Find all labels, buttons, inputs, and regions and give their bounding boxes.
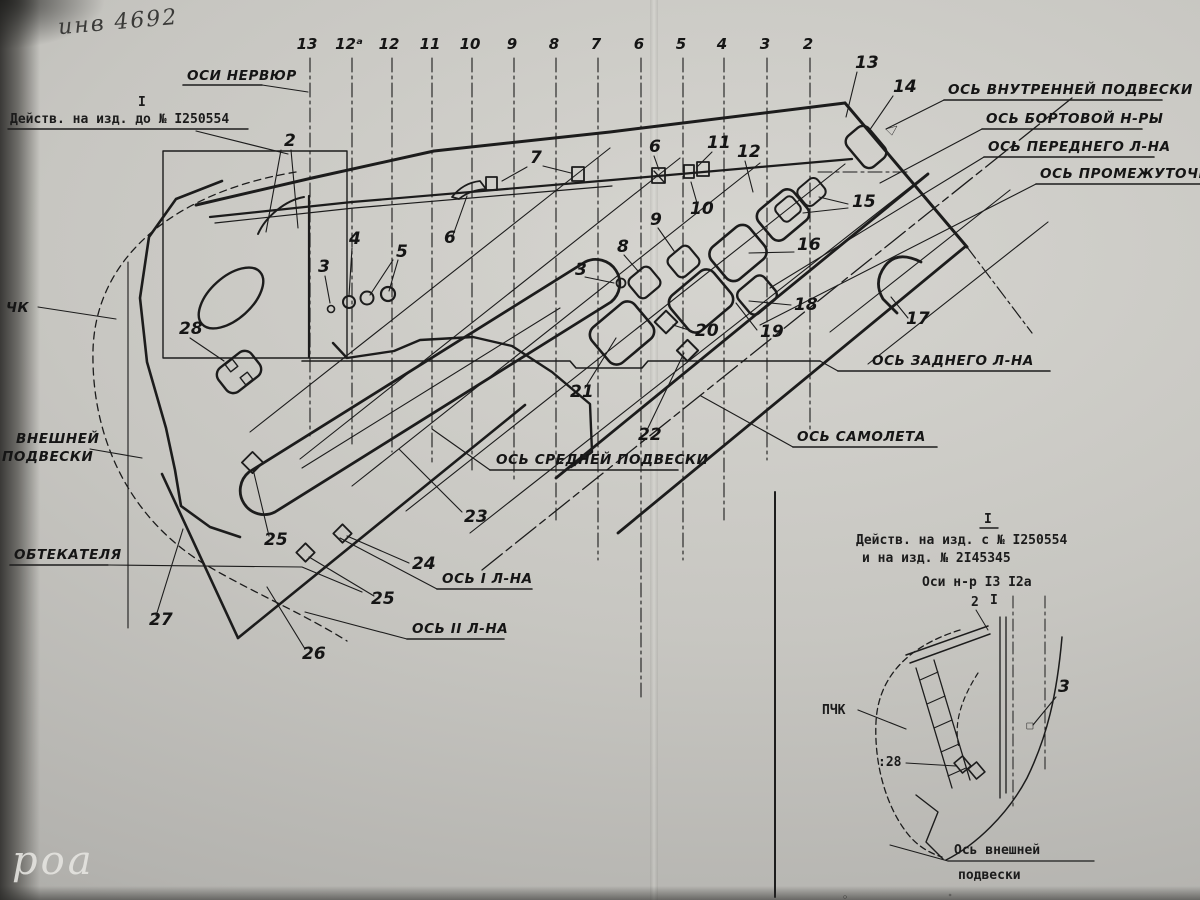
inset-ladder-rung: [920, 672, 938, 680]
rib-number: 7: [591, 35, 602, 53]
leader: [749, 252, 794, 253]
leader: [647, 353, 684, 430]
callout-14: 14: [893, 77, 917, 97]
inset-slat-line: [906, 626, 988, 655]
rib-number: 13: [297, 35, 318, 53]
inset-diagram: IДейств. на изд. с № I250554и на изд. № …: [775, 492, 1094, 897]
callout-18: 18: [794, 295, 818, 315]
callout-9: 9: [650, 210, 662, 230]
inset-callout-1: I: [990, 593, 998, 608]
inset-ladder-rung: [927, 696, 945, 704]
pchk-label: ЧК: [6, 300, 30, 316]
callout-28: 28: [179, 319, 203, 339]
leader: [819, 197, 848, 204]
rib-number: 4: [716, 35, 727, 53]
callout-21: 21: [570, 382, 594, 402]
callout-16: 16: [797, 235, 821, 255]
diamond-fitting-22: [677, 340, 698, 361]
callout-25b: 25: [371, 589, 395, 609]
leader: [906, 763, 956, 766]
side-rib-axis-label: ОСЬ БОРТОВОЙ Н-РЫ: [986, 110, 1163, 127]
callout-10: 10: [690, 199, 714, 219]
rear-spar-axis-label: ОСЬ ЗАДНЕГО Л-НА: [872, 353, 1034, 369]
callout-5: 5: [396, 242, 408, 262]
validity-note-old: Действ. на изд. до № I250554: [10, 112, 229, 127]
rib-number: 9: [507, 35, 517, 53]
leader: [880, 129, 982, 183]
leader: [701, 396, 793, 447]
inset-callout-3: 3: [1058, 677, 1070, 697]
inset-ladder-rung: [941, 744, 959, 752]
callout-2: 2: [284, 131, 296, 151]
callout-13: 13: [855, 53, 879, 73]
leader: [858, 710, 906, 729]
leader: [347, 536, 409, 563]
leader: [890, 845, 948, 861]
rib-number: 11: [420, 35, 441, 53]
leader: [452, 196, 467, 238]
inset-point-3: [1027, 723, 1033, 729]
hole-4: [343, 296, 355, 308]
callout-7: 7: [530, 148, 542, 168]
fairing-label: ОБТЕКАТЕЛЯ: [14, 547, 122, 563]
leader: [585, 277, 614, 283]
inset-callout-2: 2: [971, 595, 979, 610]
leader: [658, 228, 674, 251]
photo-watermark: роа: [12, 838, 95, 884]
callout-26: 26: [302, 644, 326, 664]
callout-19: 19: [760, 322, 784, 342]
inset-rib-axes-label: Оси н-р I3 I2а: [922, 575, 1032, 590]
callout-4: 4: [348, 229, 361, 249]
inset-fairing-outline: [876, 630, 960, 857]
leader: [266, 150, 281, 232]
leader: [38, 307, 116, 319]
callout-6b: 6: [649, 137, 661, 157]
page-bottom-shadow: [0, 886, 1200, 900]
aileron-slot-axis: [302, 308, 560, 468]
leader: [745, 161, 753, 192]
callout-12: 12: [737, 142, 761, 162]
stringer-line: [470, 173, 928, 533]
leader: [291, 150, 298, 228]
leader: [309, 557, 374, 596]
outer-pylon-label-line2: ПОДВЕСКИ: [2, 449, 93, 465]
inset-ladder-rung: [934, 720, 952, 728]
inset-callout-28: :28: [878, 755, 902, 770]
leader: [543, 166, 571, 173]
intermediate-axis-label: ОСЬ ПРОМЕЖУТОЧНОЙ Н: [1040, 165, 1200, 182]
middle-pylon-axis-label: ОСЬ СРЕДНЕЙ ПОДВЕСКИ: [496, 451, 709, 468]
spar-1-axis-label: ОСЬ I Л-НА: [442, 571, 533, 587]
hole-5b: [381, 287, 395, 301]
inset-outer-pylon-label-line2: подвески: [958, 868, 1021, 883]
callout-17: 17: [906, 309, 930, 329]
validity-note-new-line1: Действ. на изд. с № I250554: [856, 533, 1067, 548]
small-square-11b: [697, 162, 709, 176]
rib-number: 10: [460, 35, 481, 53]
inner-pylon-axis-label: ОСЬ ВНУТРЕННЕЙ ПОДВЕСКИ: [948, 81, 1193, 98]
callout-25a: 25: [264, 530, 288, 550]
callout-11: 11: [707, 133, 731, 153]
callout-24: 24: [412, 554, 436, 574]
callout-27: 27: [149, 610, 173, 630]
inset-outer-pylon-label-line1: Ось внешней: [954, 843, 1040, 858]
fitting-15b: [795, 176, 828, 209]
wing-drawing-canvas: 1312ᵃ12111098765432ОСИ НЕРВЮРIДейств. на…: [0, 0, 1200, 900]
rib-number: 3: [760, 35, 770, 53]
rib-number: 5: [676, 35, 686, 53]
arrowhead: [886, 126, 897, 135]
outer-pylon-fitting: [213, 347, 265, 396]
callout-8: 8: [617, 237, 629, 257]
front-spar-axis-label: ОСЬ ПЕРЕДНЕГО Л-НА: [988, 139, 1171, 155]
hole-3: [328, 306, 335, 313]
callout-23: 23: [464, 507, 488, 527]
callout-20: 20: [695, 321, 719, 341]
wingtip-outline: [140, 181, 240, 537]
inset-slat-line: [910, 634, 990, 663]
inset-bottom-contour: [916, 795, 943, 859]
stringer-line: [300, 158, 680, 459]
bottom-wedge-left: [162, 474, 238, 638]
aircraft-axis-label: ОСЬ САМОЛЕТА: [797, 429, 926, 445]
trailing-edge: [618, 246, 966, 533]
main-diagram: 1312ᵃ12111098765432ОСИ НЕРВЮРIДейств. на…: [2, 35, 1200, 899]
leader: [869, 96, 893, 131]
front-contour-line: [215, 186, 612, 223]
leader: [156, 529, 183, 616]
leader: [325, 276, 330, 303]
hatch: [586, 297, 658, 368]
outer-pylon-label-line1: ВНЕШНЕЙ: [16, 430, 100, 447]
leader: [267, 587, 305, 649]
rib-number: 8: [549, 35, 559, 53]
callout-15: 15: [852, 192, 876, 212]
rib-number: 12: [379, 35, 400, 53]
rib-axes-label: ОСИ НЕРВЮР: [187, 68, 297, 84]
section-mark: I: [138, 95, 146, 110]
leader: [253, 469, 269, 536]
rib-number: 12ᵃ: [335, 35, 363, 53]
validity-note-new-line2: и на изд. № 2I45345: [862, 551, 1011, 566]
leader: [262, 85, 308, 92]
small-square-11a: [684, 165, 694, 178]
leader: [886, 100, 944, 129]
callout-3: 3: [318, 257, 330, 277]
callout-22: 22: [638, 425, 662, 445]
small-square-7a: [486, 177, 497, 190]
stringer-line: [868, 222, 1048, 364]
inset-pchk-label: ПЧК: [822, 703, 846, 718]
small-square-7b: [572, 167, 584, 181]
inset-section-mark: I: [984, 512, 992, 527]
spar-2-axis-label: ОСЬ II Л-НА: [412, 621, 508, 637]
leader: [399, 449, 462, 512]
inset-inner-dashed: [957, 673, 978, 747]
scanned-drawing-page: 1312ᵃ12111098765432ОСИ НЕРВЮРIДейств. на…: [0, 0, 1200, 900]
hatch-small: [626, 264, 663, 301]
rib-number: 2: [803, 35, 813, 53]
slat-end: [452, 181, 486, 199]
leader: [432, 429, 490, 470]
rib-number: 6: [634, 35, 644, 53]
rear-spar-label-link: [820, 361, 838, 371]
leader: [90, 449, 142, 458]
